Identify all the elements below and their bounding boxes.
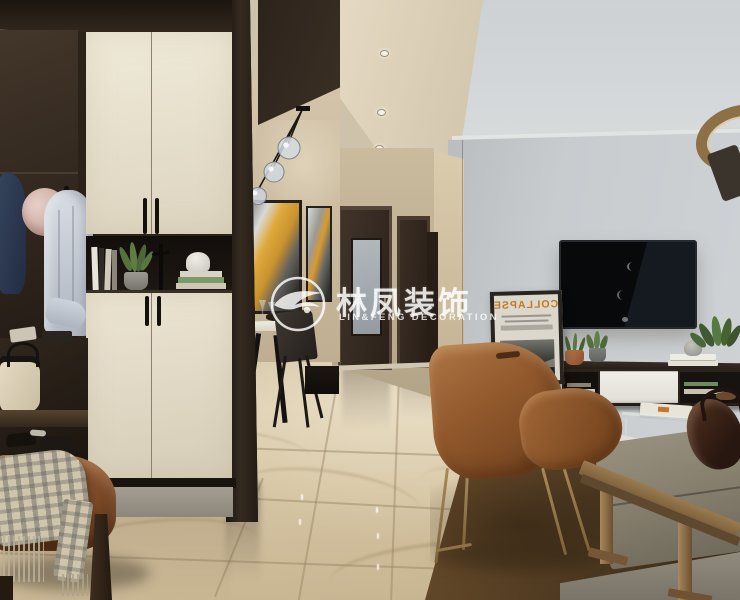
door-handle-bar — [157, 296, 161, 326]
folded-items — [42, 331, 72, 342]
dining-chair-back — [274, 309, 318, 363]
white-book-stack — [668, 360, 718, 366]
wall-tv — [559, 240, 697, 329]
frosted-glass-panel — [351, 238, 382, 336]
wardrobe-upper-doors — [86, 32, 232, 234]
stacked-books — [178, 277, 224, 283]
blanket-fringe — [62, 574, 88, 596]
door-handle — [384, 298, 386, 305]
hallway-door — [400, 220, 427, 365]
door-seam — [151, 32, 152, 234]
door-handle-bar — [145, 296, 149, 326]
poster-text-line — [501, 314, 551, 317]
floor-glint — [299, 519, 301, 525]
hallway-door-far — [427, 232, 438, 362]
tv-standby-dot — [622, 317, 628, 322]
copper-planter — [565, 350, 584, 365]
navy-coat — [0, 172, 26, 294]
magazine-accent — [658, 407, 669, 413]
floor-glint — [376, 507, 378, 513]
bench-leg — [0, 576, 13, 600]
interior-render: COLLAPSE — [0, 0, 740, 600]
handbag — [0, 362, 40, 412]
wood-table-leg — [678, 516, 692, 600]
handbag-handle — [7, 342, 39, 367]
tv-stand-drawer — [600, 371, 678, 403]
poster-text-line — [504, 319, 549, 322]
recessed-downlight — [377, 109, 386, 116]
floor-glint — [377, 564, 379, 570]
white-sneaker — [30, 429, 46, 436]
stacked-books — [176, 283, 226, 289]
shoes — [40, 436, 74, 449]
door-handle-bar — [155, 198, 159, 234]
door-handle-bar — [143, 198, 147, 234]
floor-glint — [301, 494, 303, 500]
dome-ornament — [186, 252, 210, 272]
niche-books — [112, 250, 117, 290]
recessed-downlight — [380, 50, 389, 57]
door-seam — [151, 293, 152, 480]
black-side-table — [305, 366, 339, 394]
cubby-books — [684, 382, 718, 386]
tv-reflection-arc — [617, 290, 629, 300]
wall-art-abstract-large — [248, 200, 302, 314]
gray-planter — [589, 348, 606, 362]
bench-shelf-front — [0, 410, 88, 427]
niche-books — [99, 248, 104, 290]
tv-reflection-arc — [627, 262, 638, 271]
cubby-books — [567, 383, 591, 387]
poster-title: COLLAPSE — [494, 298, 558, 312]
poster-text-line — [500, 324, 553, 330]
wall-art-abstract-small — [306, 206, 332, 302]
floor-glint — [377, 533, 379, 539]
plant-pot — [124, 272, 148, 290]
